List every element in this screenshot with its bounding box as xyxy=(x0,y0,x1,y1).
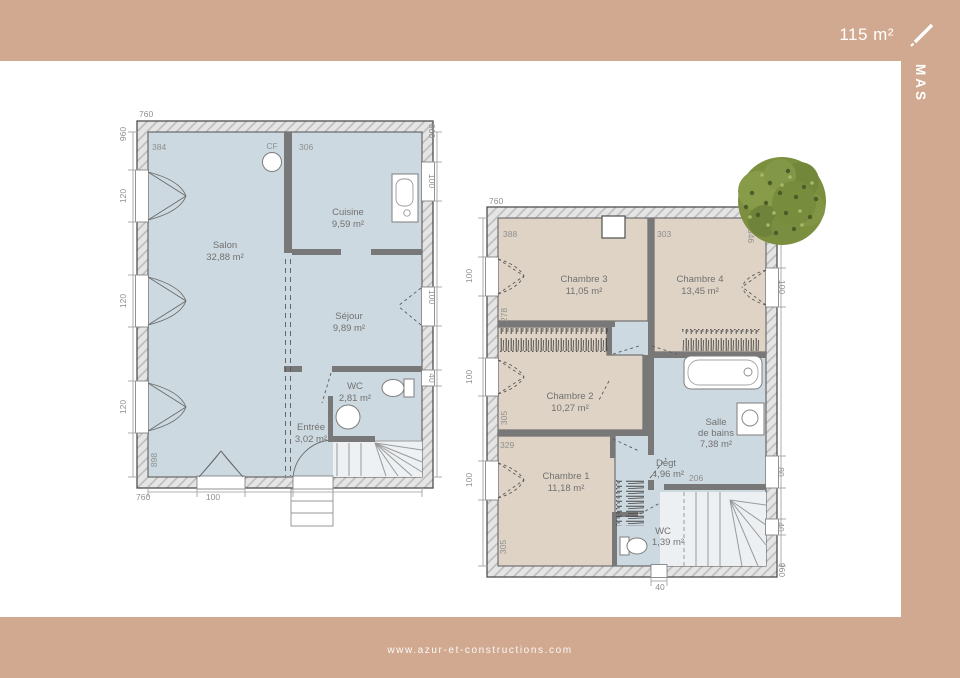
svg-text:10,27 m²: 10,27 m² xyxy=(551,403,589,414)
uf-dim-ch2-depth: 305 xyxy=(499,411,509,425)
svg-text:Dégt: Dégt xyxy=(656,458,676,469)
chambre3-label: Chambre 3 11,05 m² xyxy=(561,274,608,297)
gf-toilet xyxy=(382,379,414,397)
uf-dim-right-height: 960 xyxy=(777,563,787,577)
svg-text:9,59 m²: 9,59 m² xyxy=(332,219,364,230)
entree-label: Entrée 3,02 m² xyxy=(295,422,327,445)
gf-dim-right-win2: 100 xyxy=(427,290,437,304)
svg-text:7,38 m²: 7,38 m² xyxy=(700,439,732,450)
svg-text:13,45 m²: 13,45 m² xyxy=(681,286,719,297)
svg-text:Séjour: Séjour xyxy=(335,311,362,322)
gf-dim-bottom-door: 100 xyxy=(206,492,220,502)
brand-model-name: MAS xyxy=(913,64,928,103)
ground-floor-plan: 760 960 120 120 120 760 100 960 100 100 … xyxy=(118,109,442,526)
svg-text:2,81 m²: 2,81 m² xyxy=(339,393,371,404)
uf-dim-right-win1: 100 xyxy=(777,280,787,294)
gf-dim-salon-depth: 898 xyxy=(149,453,159,467)
sejour-label: Séjour 9,89 m² xyxy=(333,311,365,334)
floor-plans-canvas: 760 960 120 120 120 760 100 960 100 100 … xyxy=(0,0,960,678)
svg-text:1,39 m²: 1,39 m² xyxy=(652,537,684,548)
bathtub xyxy=(684,356,762,389)
svg-text:Salon: Salon xyxy=(213,240,237,251)
uf-toilet xyxy=(620,537,647,555)
chambre4-label: Chambre 4 13,45 m² xyxy=(677,274,724,297)
kitchen-sink xyxy=(392,174,418,222)
gf-dim-right-win3: 40 xyxy=(427,373,437,383)
svg-text:Entrée: Entrée xyxy=(297,422,325,433)
gf-washbasin xyxy=(336,405,360,429)
uf-dim-ch1-depth: 305 xyxy=(498,540,508,554)
cuisine-label: Cuisine 9,59 m² xyxy=(332,207,364,230)
entrance-steps xyxy=(291,489,333,526)
website-url: www.azur-et-constructions.com xyxy=(0,645,960,656)
uf-dim-left-win2: 100 xyxy=(464,370,474,384)
chambre2-label: Chambre 2 10,27 m² xyxy=(547,391,594,414)
total-area-label: 115 m² xyxy=(839,25,894,45)
svg-text:Salle: Salle xyxy=(705,417,726,428)
gf-dim-right-win1: 100 xyxy=(427,174,437,188)
tree xyxy=(738,157,826,245)
chambre4-wardrobe xyxy=(682,330,760,351)
uf-dim-ch3-width: 388 xyxy=(503,229,517,239)
uf-dim-right-win3: 40 xyxy=(776,522,786,532)
gf-dim-top: 760 xyxy=(139,109,153,119)
upper-floor-plan: 760 100 100 100 100 80 40 960 40 388 303… xyxy=(464,196,787,592)
chimney xyxy=(602,216,625,238)
gf-dim-left-win1: 120 xyxy=(118,189,128,203)
svg-text:11,05 m²: 11,05 m² xyxy=(566,286,603,297)
uf-washbasin xyxy=(737,403,764,435)
svg-text:WC: WC xyxy=(655,526,671,537)
frame-right-band xyxy=(901,0,960,678)
uf-dim-left-win1: 100 xyxy=(464,269,474,283)
water-heater xyxy=(263,153,282,172)
svg-text:11,18 m²: 11,18 m² xyxy=(548,483,585,494)
uf-dim-ch1-width: 329 xyxy=(500,440,514,450)
svg-text:9,89 m²: 9,89 m² xyxy=(333,323,365,334)
uf-dim-ch3-depth: 278 xyxy=(499,308,509,322)
gf-dim-right-height: 960 xyxy=(427,124,437,138)
svg-text:Chambre 3: Chambre 3 xyxy=(561,274,608,285)
svg-text:Chambre 1: Chambre 1 xyxy=(543,471,590,482)
chambre1-label: Chambre 1 11,18 m² xyxy=(543,471,590,494)
uf-dim-left-win3: 100 xyxy=(464,473,474,487)
gf-dim-bottom-width: 760 xyxy=(136,492,150,502)
svg-text:Chambre 2: Chambre 2 xyxy=(547,391,594,402)
chambre1-wardrobe xyxy=(617,480,644,526)
svg-text:3,02 m²: 3,02 m² xyxy=(295,434,327,445)
water-heater-label: CF xyxy=(266,141,277,151)
gf-dim-cuisine-width: 306 xyxy=(299,142,313,152)
floor-plan-poster: { "frame": { "area_label": "115 m²", "br… xyxy=(0,0,960,678)
gf-dim-left-win2: 120 xyxy=(118,294,128,308)
uf-dim-bottom-win: 40 xyxy=(655,582,665,592)
chambre1-floor xyxy=(498,436,615,566)
pencil-icon xyxy=(908,20,936,48)
svg-text:4,96 m²: 4,96 m² xyxy=(652,469,684,480)
svg-text:32,88 m²: 32,88 m² xyxy=(206,252,244,263)
gf-dim-left-height: 960 xyxy=(118,127,128,141)
uf-dim-top: 760 xyxy=(489,196,503,206)
uf-dim-ch4-width: 303 xyxy=(657,229,671,239)
uf-dim-stairs-width: 206 xyxy=(689,473,703,483)
svg-text:WC: WC xyxy=(347,381,363,392)
chambre2-wardrobe xyxy=(500,328,608,351)
svg-text:de bains: de bains xyxy=(698,428,734,439)
gf-dim-salon-width: 384 xyxy=(152,142,166,152)
svg-text:Chambre 4: Chambre 4 xyxy=(677,274,724,285)
frame-top-band xyxy=(0,0,960,61)
svg-text:Cuisine: Cuisine xyxy=(332,207,364,218)
uf-dim-right-win2: 80 xyxy=(776,467,786,477)
gf-dim-left-win3: 120 xyxy=(118,400,128,414)
